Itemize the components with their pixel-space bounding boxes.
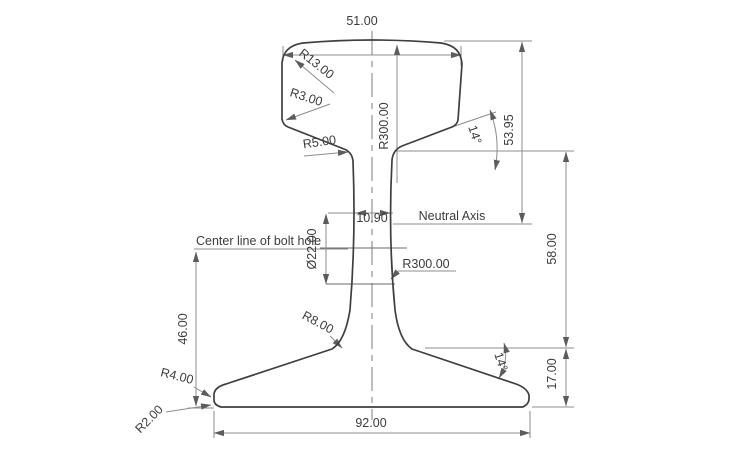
label-head-crown-radius: R300.00	[377, 102, 391, 149]
technical-drawing-canvas: 51.00 R13.00 R3.00 R300.00 14° 53.95 R5.…	[0, 0, 750, 450]
label-head-underside-angle: 14°	[465, 124, 484, 146]
dim-head-width: 51.00	[346, 14, 377, 28]
label-bolt-hole-centerline: Center line of bolt hole	[196, 234, 321, 248]
label-foot-edge-radius: R4.00	[159, 365, 195, 387]
dim-bolt-hole-diameter: Ø22.00	[305, 228, 319, 269]
label-web-foot-fillet-radius: R8.00	[300, 308, 336, 336]
label-head-corner-radius: R13.00	[296, 46, 336, 82]
label-neutral-axis: Neutral Axis	[419, 209, 486, 223]
dim-web-thickness: 10.90	[356, 211, 387, 225]
label-head-web-fillet-radius: R5.00	[302, 133, 337, 152]
dim-web-height: 58.00	[545, 233, 559, 264]
label-web-side-radius: R300.00	[402, 257, 449, 271]
dim-head-height: 53.95	[502, 114, 516, 145]
dim-foot-height: 17.00	[545, 358, 559, 389]
rail-section-drawing: 51.00 R13.00 R3.00 R300.00 14° 53.95 R5.…	[0, 0, 750, 450]
label-foot-base-radius: R2.00	[132, 402, 166, 436]
label-foot-top-angle: 14°	[491, 351, 510, 373]
bolt-hole-lines	[320, 248, 407, 284]
label-head-side-radius: R3.00	[288, 85, 324, 109]
dim-bolt-hole-height: 46.00	[176, 313, 190, 344]
dim-foot-width: 92.00	[355, 416, 386, 430]
